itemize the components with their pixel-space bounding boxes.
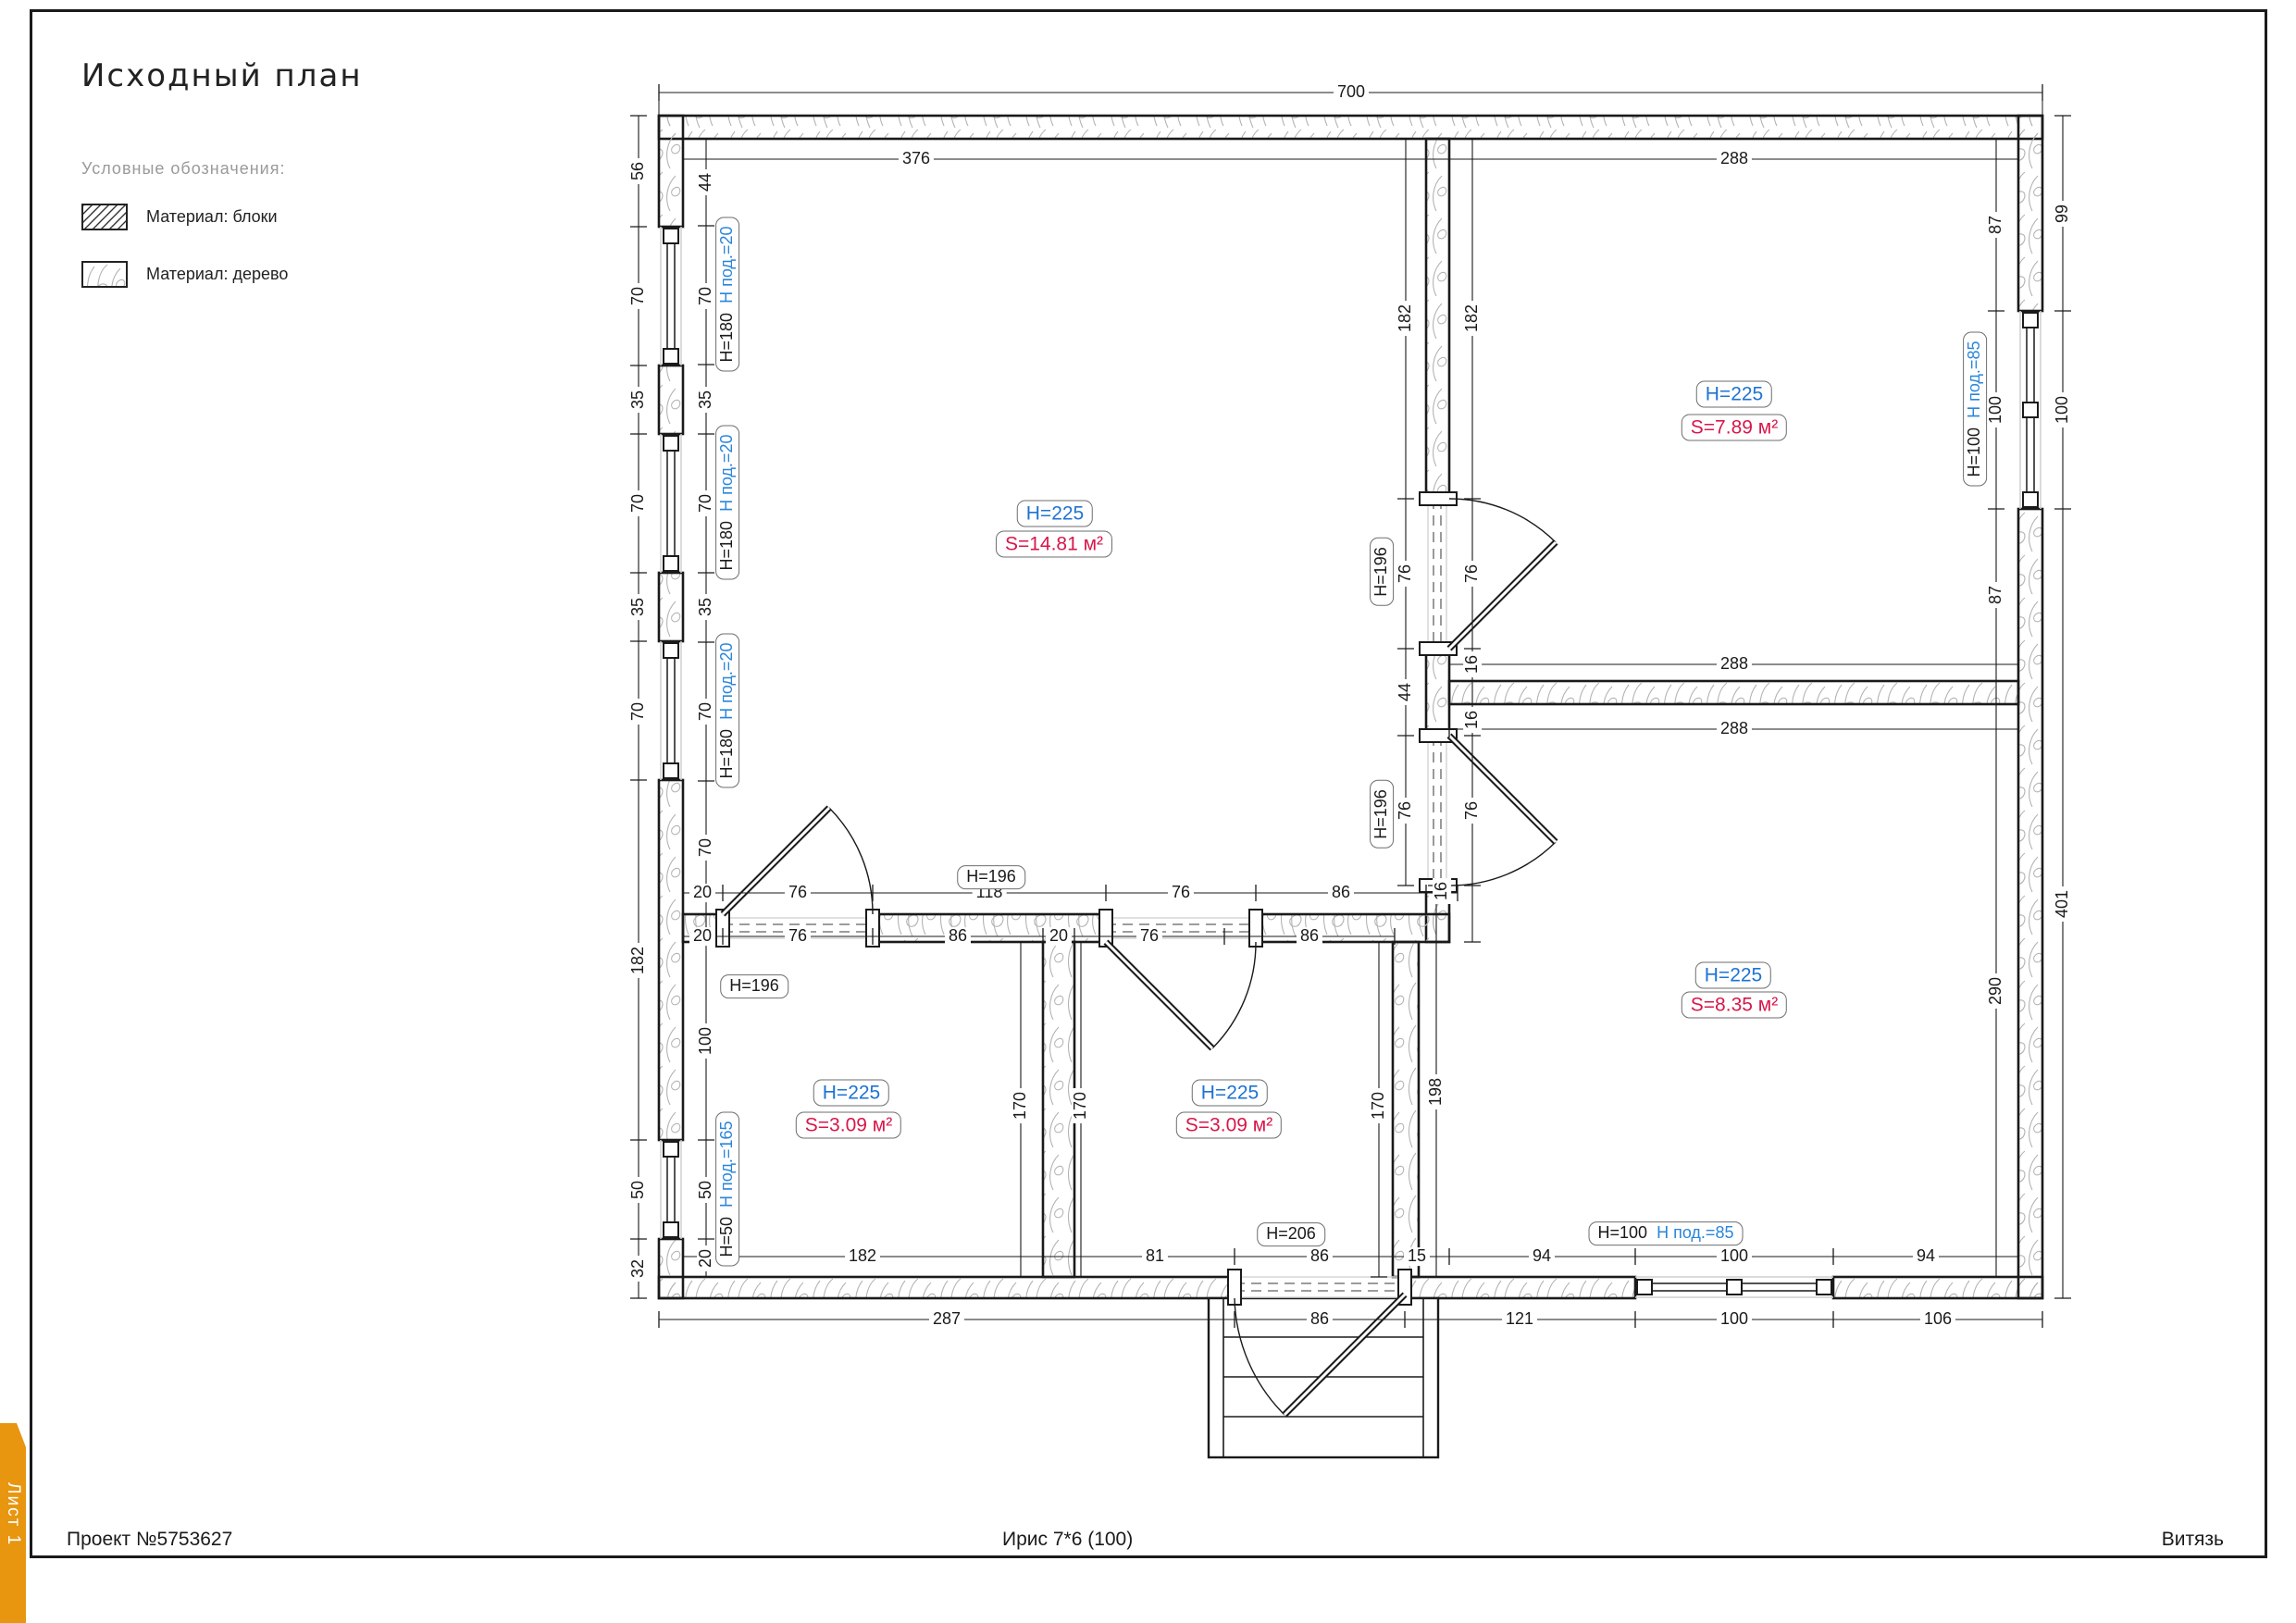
series-name: Витязь [2162,1529,2224,1551]
floor-plan: 7003762885670357035701825032447035703570… [0,0,2296,1623]
project-number: Проект №5753627 [67,1529,232,1551]
floor-plan-canvas [0,0,2296,1623]
sheet: Исходный план Условные обозначения: Мате… [0,0,2296,1623]
project-name: Ирис 7*6 (100) [1002,1529,1133,1551]
openings-layer [661,227,2041,1415]
sheet-tab[interactable]: Лист 1 [0,1423,26,1623]
sheet-tab-label: Лист 1 [3,1482,23,1546]
dimension-lines-layer [630,84,2071,1328]
